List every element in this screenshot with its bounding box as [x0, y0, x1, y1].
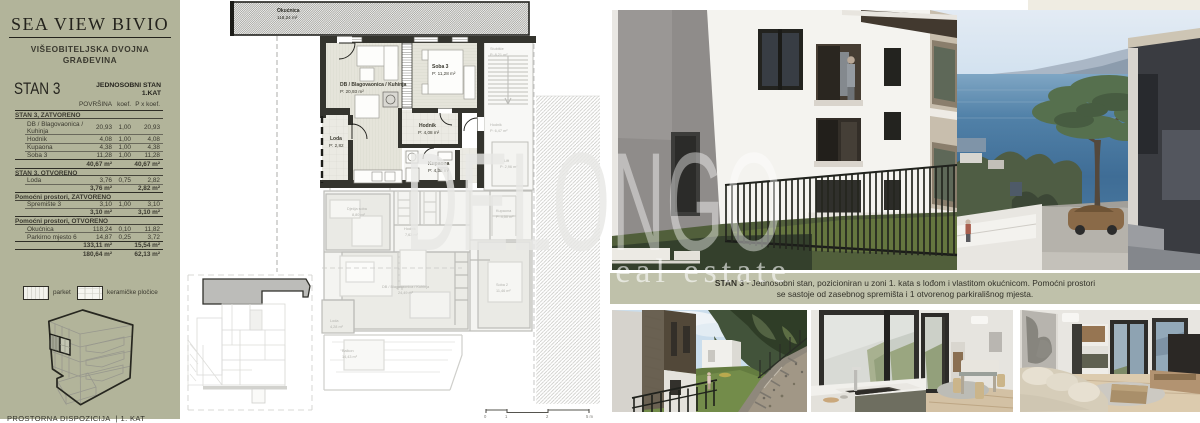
svg-text:P: 2,82: P: 2,82 — [329, 143, 344, 148]
svg-text:Dječja soba: Dječja soba — [347, 207, 368, 211]
svg-text:P: 8,21 m²: P: 8,21 m² — [490, 53, 508, 57]
svg-text:2: 2 — [546, 414, 549, 419]
svg-text:118,24 m²: 118,24 m² — [277, 15, 298, 20]
svg-text:14,43 m²: 14,43 m² — [342, 355, 358, 359]
svg-text:Soba 3: Soba 3 — [432, 64, 449, 70]
svg-text:4,28 m²: 4,28 m² — [330, 325, 344, 329]
svg-text:11,46 m²: 11,46 m² — [496, 289, 511, 293]
svg-text:Loda: Loda — [330, 136, 342, 142]
svg-text:DB / Blagovaonica / Kuhinja: DB / Blagovaonica / Kuhinja — [340, 82, 407, 88]
svg-text:5 m: 5 m — [586, 414, 593, 419]
svg-text:Okućnica: Okućnica — [277, 8, 300, 14]
svg-text:P: 11,28 m²: P: 11,28 m² — [432, 71, 456, 76]
svg-text:Balkon: Balkon — [342, 349, 354, 353]
svg-text:Loda: Loda — [330, 319, 339, 323]
svg-text:DB / Blagovaonica / Kuhinja: DB / Blagovaonica / Kuhinja — [382, 285, 430, 289]
svg-text:1: 1 — [505, 414, 508, 419]
svg-text:Stubište: Stubište — [490, 47, 504, 51]
svg-text:DELONGO: DELONGO — [612, 124, 784, 270]
svg-text:24,49 m²: 24,49 m² — [398, 291, 414, 295]
svg-text:Soba 2: Soba 2 — [496, 283, 508, 287]
svg-text:DELONGO: DELONGO — [405, 124, 612, 280]
svg-text:0: 0 — [484, 414, 487, 419]
svg-text:8,80 m²: 8,80 m² — [352, 213, 366, 217]
svg-text:P: 20,93 m²: P: 20,93 m² — [340, 89, 364, 94]
